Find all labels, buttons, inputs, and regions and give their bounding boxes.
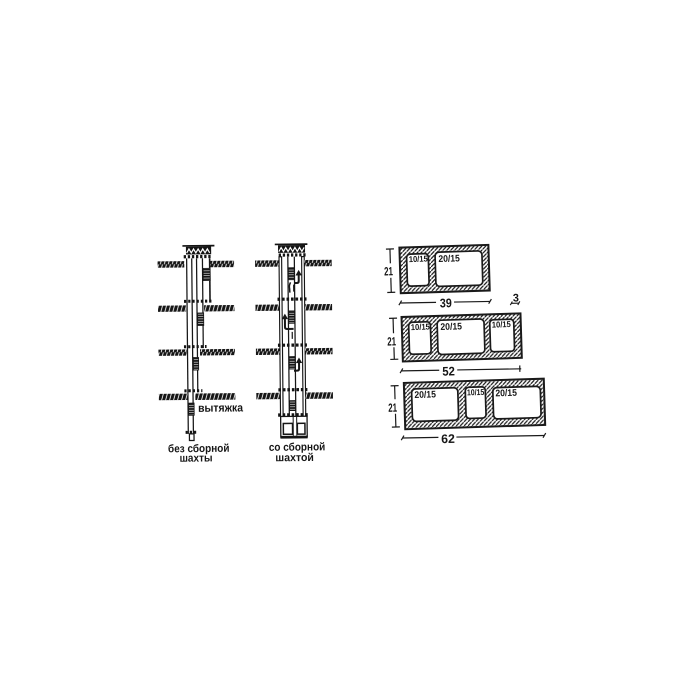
- svg-text:21: 21: [384, 264, 393, 278]
- svg-text:20/15: 20/15: [495, 388, 517, 400]
- svg-text:21: 21: [387, 334, 396, 348]
- svg-text:шахтой: шахтой: [275, 452, 314, 464]
- svg-text:10/15: 10/15: [467, 387, 485, 398]
- svg-text:вытяжка: вытяжка: [198, 402, 244, 414]
- svg-text:10/15: 10/15: [411, 322, 431, 333]
- svg-text:21: 21: [388, 401, 397, 415]
- svg-text:10/15: 10/15: [492, 319, 512, 330]
- svg-text:20/15: 20/15: [440, 321, 462, 333]
- svg-text:20/15: 20/15: [414, 389, 436, 401]
- svg-text:20/15: 20/15: [438, 253, 460, 265]
- svg-text:52: 52: [442, 364, 455, 378]
- svg-text:39: 39: [440, 296, 452, 310]
- svg-text:62: 62: [441, 432, 455, 446]
- svg-text:10/15: 10/15: [409, 254, 429, 265]
- svg-text:шахты: шахты: [179, 452, 212, 464]
